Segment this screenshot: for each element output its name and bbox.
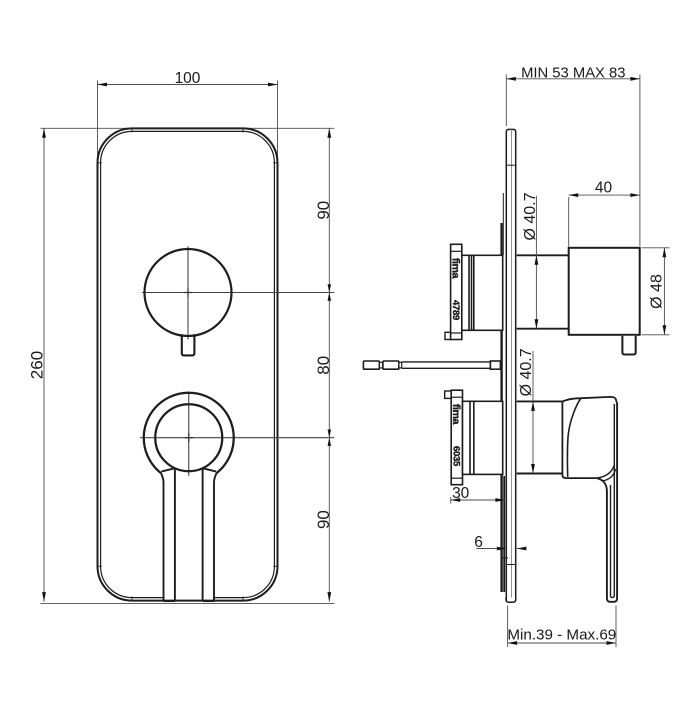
svg-text:90: 90 xyxy=(314,510,333,529)
svg-text:MIN 53 MAX 83: MIN 53 MAX 83 xyxy=(521,65,625,81)
svg-text:100: 100 xyxy=(175,70,201,87)
svg-text:Min.39 - Max.69: Min.39 - Max.69 xyxy=(507,626,616,643)
svg-text:80: 80 xyxy=(314,356,333,375)
svg-text:40: 40 xyxy=(595,179,613,196)
svg-text:Ø 40.7: Ø 40.7 xyxy=(518,348,535,396)
svg-text:fima: fima xyxy=(450,258,462,279)
svg-text:Ø 48: Ø 48 xyxy=(649,274,666,309)
svg-text:260: 260 xyxy=(27,351,46,379)
svg-text:30: 30 xyxy=(452,485,470,502)
svg-text:90: 90 xyxy=(314,201,333,220)
svg-text:4789: 4789 xyxy=(450,300,461,320)
svg-text:Ø 40.7: Ø 40.7 xyxy=(522,192,539,240)
svg-text:6: 6 xyxy=(474,534,483,551)
svg-text:6035: 6035 xyxy=(451,446,462,467)
svg-text:fima: fima xyxy=(450,404,462,425)
